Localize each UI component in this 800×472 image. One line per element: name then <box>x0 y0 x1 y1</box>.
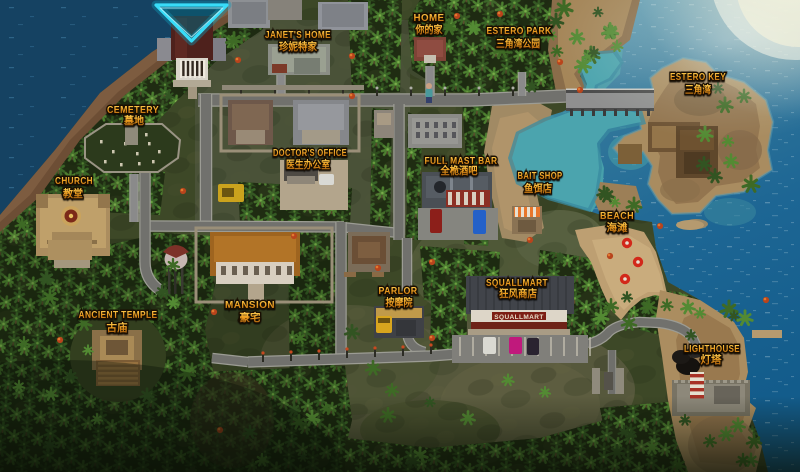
svg-text:ESTERO KEY: ESTERO KEY <box>670 71 726 83</box>
svg-text:海滩: 海滩 <box>607 221 628 234</box>
svg-text:DOCTOR'S OFFICE: DOCTOR'S OFFICE <box>273 147 347 159</box>
svg-text:SQUALLMART: SQUALLMART <box>494 314 544 321</box>
svg-text:CHURCH: CHURCH <box>55 175 93 187</box>
svg-text:全桅酒吧: 全桅酒吧 <box>440 164 478 177</box>
svg-text:教堂: 教堂 <box>62 187 83 200</box>
svg-text:JANET'S HOME: JANET'S HOME <box>265 29 331 41</box>
svg-text:医生办公室: 医生办公室 <box>286 158 330 171</box>
svg-text:你的家: 你的家 <box>415 23 443 36</box>
svg-text:豪宅: 豪宅 <box>240 311 261 324</box>
svg-text:墓地: 墓地 <box>123 114 144 127</box>
svg-text:ESTERO PARK: ESTERO PARK <box>487 25 552 37</box>
svg-text:BAIT SHOP: BAIT SHOP <box>518 170 563 182</box>
svg-text:ANCIENT TEMPLE: ANCIENT TEMPLE <box>79 309 158 321</box>
svg-text:三角湾: 三角湾 <box>685 83 711 96</box>
svg-text:MANSION: MANSION <box>225 299 275 311</box>
svg-text:鱼饵店: 鱼饵店 <box>524 182 552 195</box>
svg-text:BEACH: BEACH <box>600 210 634 222</box>
svg-text:狂风商店: 狂风商店 <box>499 287 537 300</box>
svg-text:按摩院: 按摩院 <box>386 296 413 309</box>
svg-text:珍妮特家: 珍妮特家 <box>279 40 317 53</box>
svg-text:PARLOR: PARLOR <box>379 285 418 297</box>
svg-text:三角湾公园: 三角湾公园 <box>496 37 540 50</box>
svg-text:HOME: HOME <box>414 12 445 24</box>
svg-text:灯塔: 灯塔 <box>701 353 722 366</box>
svg-text:古庙: 古庙 <box>107 321 128 334</box>
